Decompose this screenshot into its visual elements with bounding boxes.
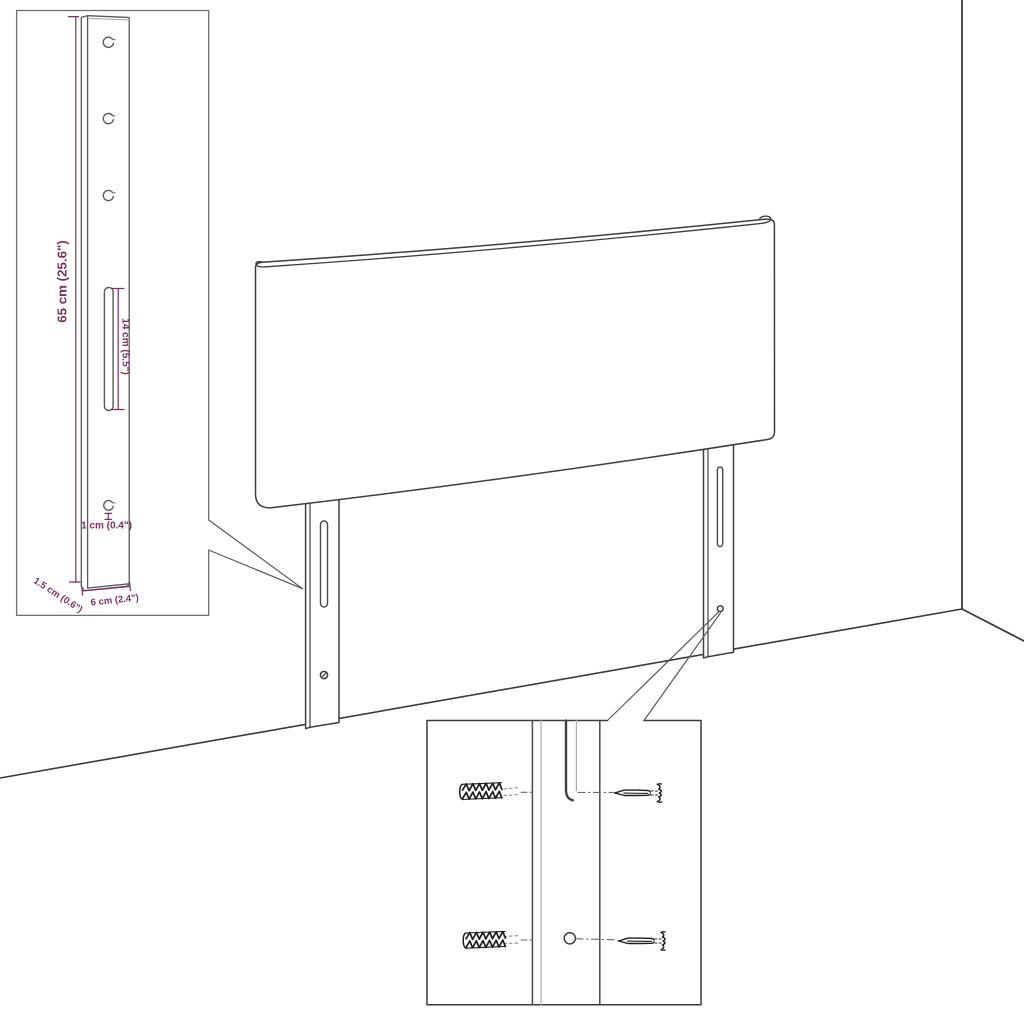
svg-text:65 cm (25.6"): 65 cm (25.6") [55, 240, 70, 322]
svg-text:6 cm (2.4"): 6 cm (2.4") [90, 593, 139, 609]
svg-text:14 cm (5.5"): 14 cm (5.5") [120, 318, 131, 374]
svg-text:1 cm (0.4"): 1 cm (0.4") [81, 521, 132, 532]
